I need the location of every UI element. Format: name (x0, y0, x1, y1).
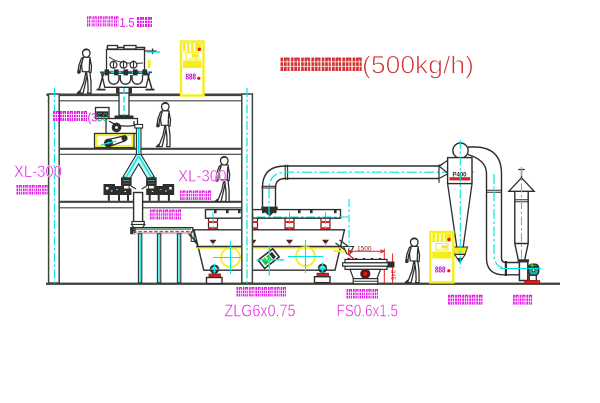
svg-text:345: 345 (389, 270, 395, 281)
svg-text:(500kg/h): (500kg/h) (362, 52, 474, 80)
svg-text:888: 888 (186, 72, 197, 81)
svg-text:1.5: 1.5 (120, 15, 135, 30)
svg-text:50: 50 (97, 113, 108, 125)
svg-text:888: 888 (435, 265, 446, 274)
svg-text:XL-300: XL-300 (178, 167, 227, 186)
svg-text:1500: 1500 (357, 246, 372, 253)
svg-text:ZLG6x0.75: ZLG6x0.75 (225, 301, 296, 321)
svg-text:(3: (3 (88, 113, 98, 125)
svg-text:XL-300: XL-300 (14, 162, 62, 181)
svg-text:FS0.6x1.5: FS0.6x1.5 (337, 301, 399, 321)
